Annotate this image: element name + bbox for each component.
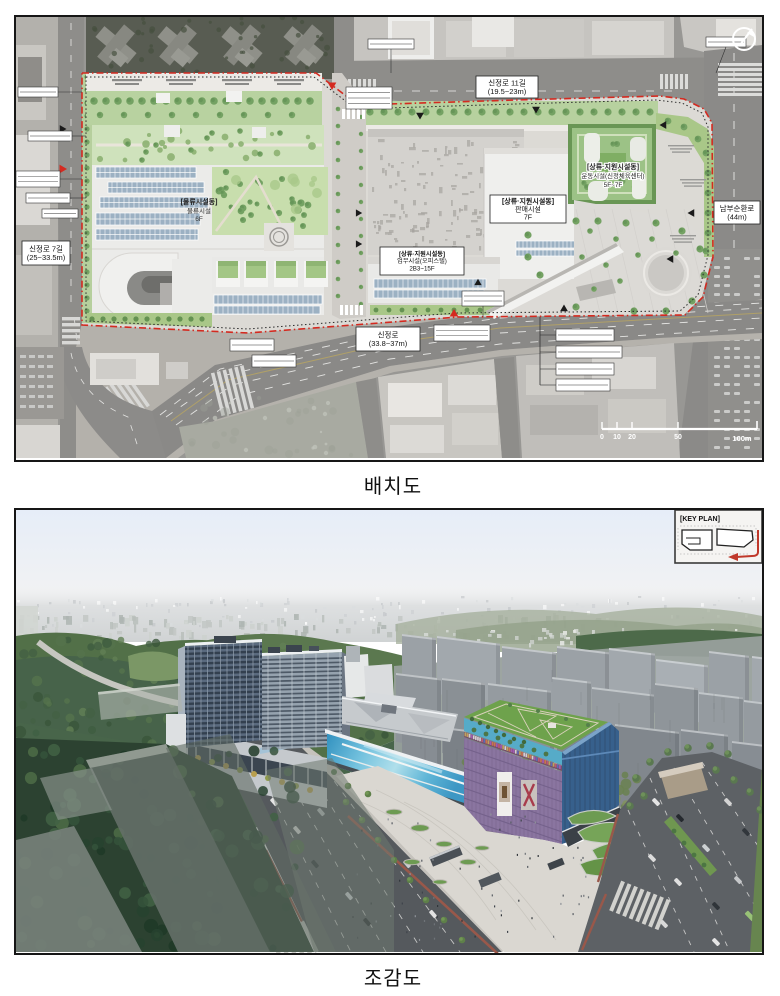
svg-text:(44m): (44m) (727, 212, 747, 221)
svg-text:2B3~15F: 2B3~15F (409, 266, 435, 273)
svg-text:50: 50 (674, 434, 682, 441)
svg-text:20: 20 (628, 434, 636, 441)
svg-text:0: 0 (600, 434, 604, 441)
svg-text:(33.8~37m): (33.8~37m) (369, 339, 408, 348)
svg-text:신정로 7길: 신정로 7길 (29, 243, 63, 253)
svg-text:운동시설(신정체육센터): 운동시설(신정체육센터) (581, 171, 644, 180)
svg-text:7F: 7F (524, 215, 532, 222)
svg-text:신정로 11길: 신정로 11길 (488, 77, 526, 87)
svg-text:100m: 100m (732, 434, 752, 443)
svg-text:[상류·지원시설동]: [상류·지원시설동] (399, 250, 445, 258)
svg-text:판매시설: 판매시설 (515, 204, 541, 213)
svg-text:(19.5~23m): (19.5~23m) (488, 87, 527, 96)
svg-text:[상류·지원시설동]: [상류·지원시설동] (587, 162, 639, 171)
svg-text:[상류·지원시설동]: [상류·지원시설동] (502, 196, 554, 205)
svg-text:업무시설(오피스텔): 업무시설(오피스텔) (397, 257, 447, 265)
svg-text:남부순환로: 남부순환로 (720, 203, 755, 213)
svg-text:물류시설: 물류시설 (187, 207, 211, 215)
svg-text:10: 10 (613, 434, 621, 441)
svg-text:(25~33.5m): (25~33.5m) (27, 253, 66, 262)
svg-text:[KEY PLAN]: [KEY PLAN] (680, 516, 720, 523)
svg-text:5F~7F: 5F~7F (604, 182, 623, 189)
svg-text:[물류시설동]: [물류시설동] (181, 197, 218, 206)
svg-text:6F: 6F (195, 216, 203, 223)
svg-text:신정로: 신정로 (378, 329, 399, 339)
